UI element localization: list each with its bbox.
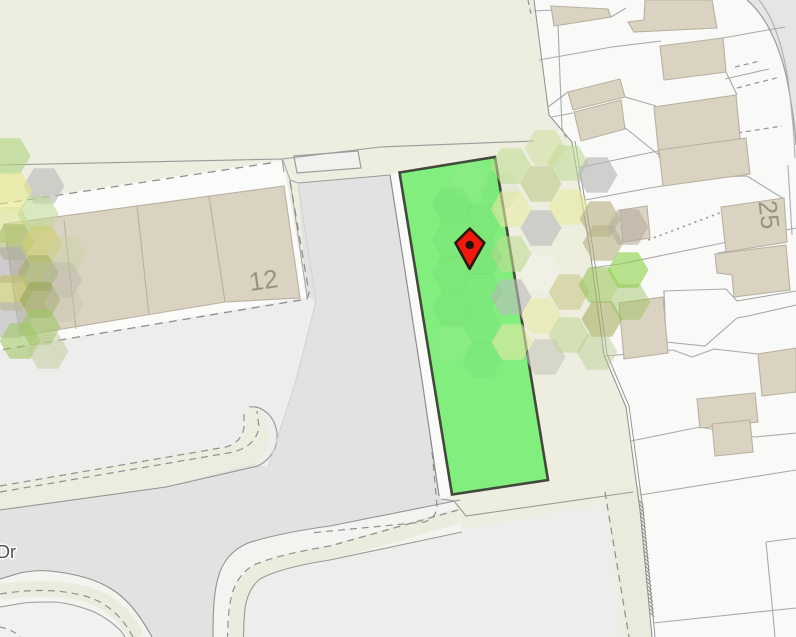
svg-text:Dr: Dr (0, 542, 16, 562)
svg-text:12: 12 (247, 263, 280, 297)
svg-text:25: 25 (752, 198, 785, 230)
